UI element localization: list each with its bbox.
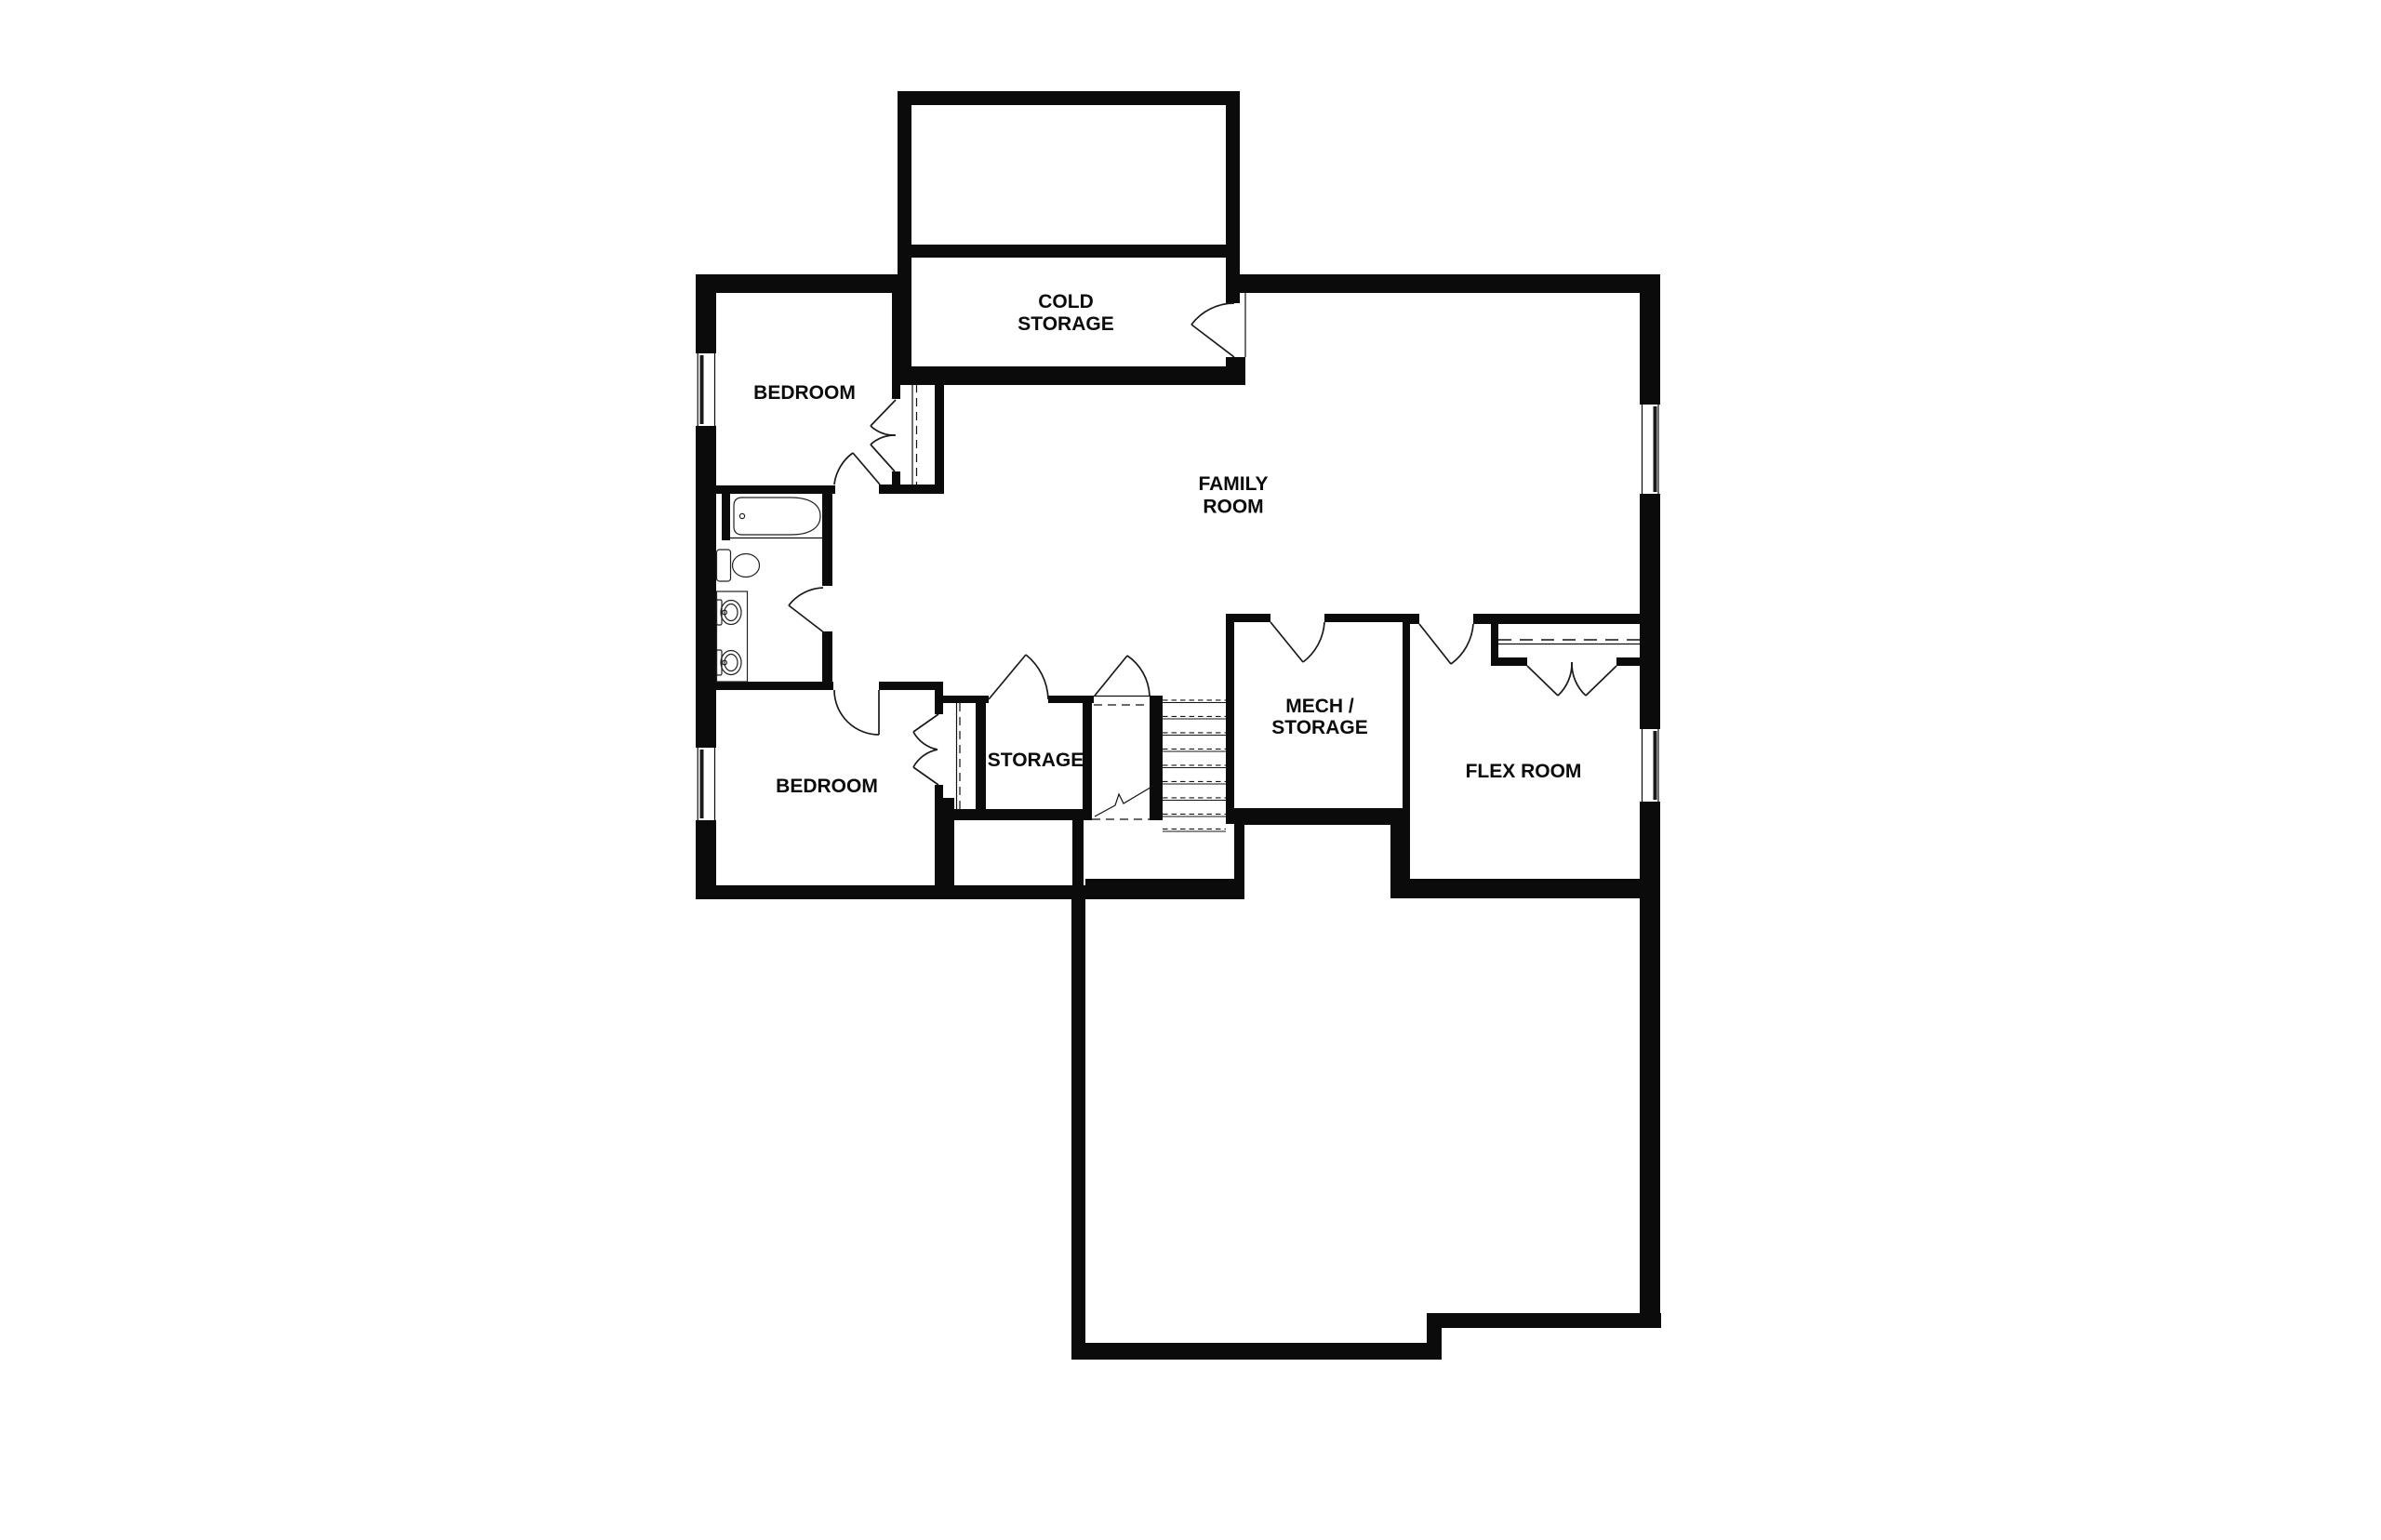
svg-text:MECH /: MECH / (1285, 696, 1354, 717)
svg-text:BEDROOM: BEDROOM (753, 382, 856, 404)
svg-text:STORAGE: STORAGE (1018, 313, 1113, 335)
svg-text:STORAGE: STORAGE (1271, 717, 1367, 738)
svg-text:FLEX ROOM: FLEX ROOM (1466, 761, 1582, 782)
svg-text:STORAGE: STORAGE (988, 750, 1084, 771)
svg-text:FAMILY: FAMILY (1198, 473, 1268, 495)
svg-text:ROOM: ROOM (1203, 497, 1263, 518)
svg-text:BEDROOM: BEDROOM (776, 776, 878, 797)
svg-text:COLD: COLD (1038, 291, 1094, 312)
